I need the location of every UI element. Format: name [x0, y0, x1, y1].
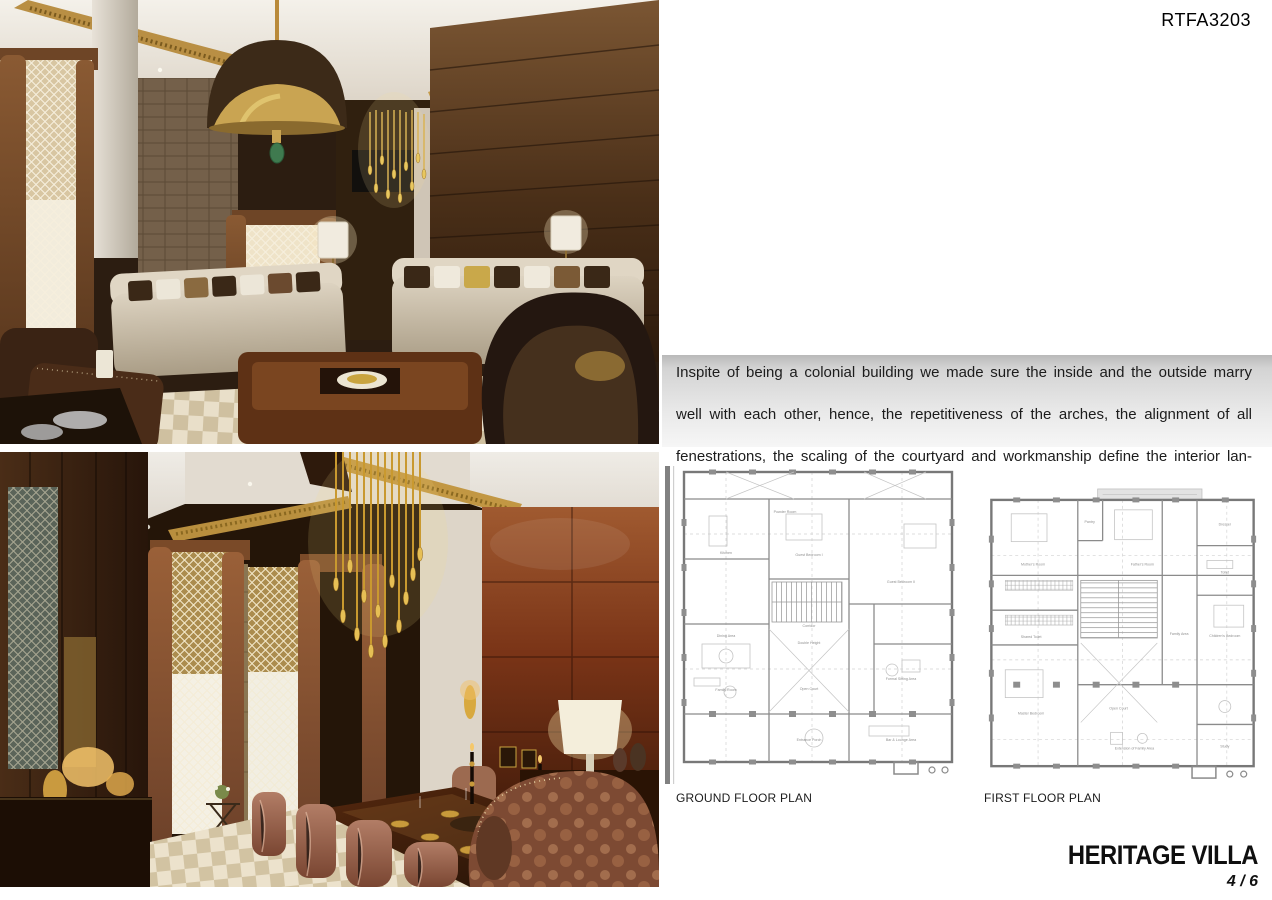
- plan-room-label: Toilet: [1221, 570, 1229, 574]
- plan-room-label: Powder Room: [774, 510, 797, 514]
- first-floor-plan-drawing: Mother's Room Pantry Father's Room Dress…: [983, 486, 1262, 789]
- page-number: 4 / 6: [1042, 873, 1258, 891]
- ground-floor-plan-label: GROUND FLOOR PLAN: [676, 791, 812, 805]
- plan-room-label: Family Room: [715, 688, 736, 692]
- description-band: Inspite of being a colonial building we …: [662, 355, 1272, 447]
- living-room-photo: [0, 0, 659, 444]
- plan-room-label: Dining Area: [717, 634, 736, 638]
- plan-room-label: Guest Bedroom II: [887, 580, 915, 584]
- plan-room-label: Double Height: [798, 641, 821, 645]
- plan-room-label: Open Court: [1109, 707, 1127, 711]
- plan-room-label: Guest Bedroom I: [795, 553, 822, 557]
- description-line: Inspite of being a colonial building we …: [676, 362, 1252, 404]
- first-floor-plan-label: FIRST FLOOR PLAN: [984, 791, 1101, 805]
- plan-room-label: Father's Room: [1131, 562, 1154, 566]
- dining-room-photo: [0, 452, 659, 887]
- plan-room-label: Mother's Room: [1021, 562, 1045, 566]
- title-block: HERITAGE VILLA 4 / 6: [1042, 840, 1258, 891]
- project-code: RTFA3203: [1161, 10, 1251, 31]
- plan-room-label: Kitchen: [720, 551, 732, 555]
- plan-room-label: Pantry: [1085, 520, 1096, 524]
- plan-room-label: Extension of Family Area: [1115, 746, 1154, 750]
- presentation-board: RTFA3203 Inspite of being a colonial bui…: [0, 0, 1272, 900]
- ground-floor-plan-drawing: Kitchen Powder Room Guest Bedroom I Gues…: [664, 464, 960, 789]
- plan-room-label: Bar & Lounge Area: [886, 738, 916, 742]
- first-floor-plan: Mother's Room Pantry Father's Room Dress…: [983, 486, 1262, 789]
- description-line: well with each other, hence, the repetit…: [676, 404, 1252, 446]
- plan-room-label: Study: [1220, 744, 1229, 748]
- plan-room-label: Dresser: [1219, 523, 1232, 527]
- project-title: HERITAGE VILLA: [1068, 840, 1258, 871]
- plan-room-label: Formal Sitting Area: [886, 677, 917, 681]
- plan-room-label: Corridor: [803, 624, 817, 628]
- living-room-illustration: [0, 0, 659, 444]
- ground-floor-plan: Kitchen Powder Room Guest Bedroom I Gues…: [664, 464, 960, 789]
- plan-room-label: Entrance Porch: [797, 738, 822, 742]
- plan-room-label: Master Bedroom: [1018, 711, 1044, 715]
- plan-room-label: Shared Toilet: [1021, 635, 1042, 639]
- plan-room-label: Family Area: [1170, 632, 1189, 636]
- plan-room-label: Children's Bedroom: [1209, 634, 1240, 638]
- dining-room-illustration: [0, 452, 659, 887]
- plan-room-label: Open Court: [800, 687, 819, 691]
